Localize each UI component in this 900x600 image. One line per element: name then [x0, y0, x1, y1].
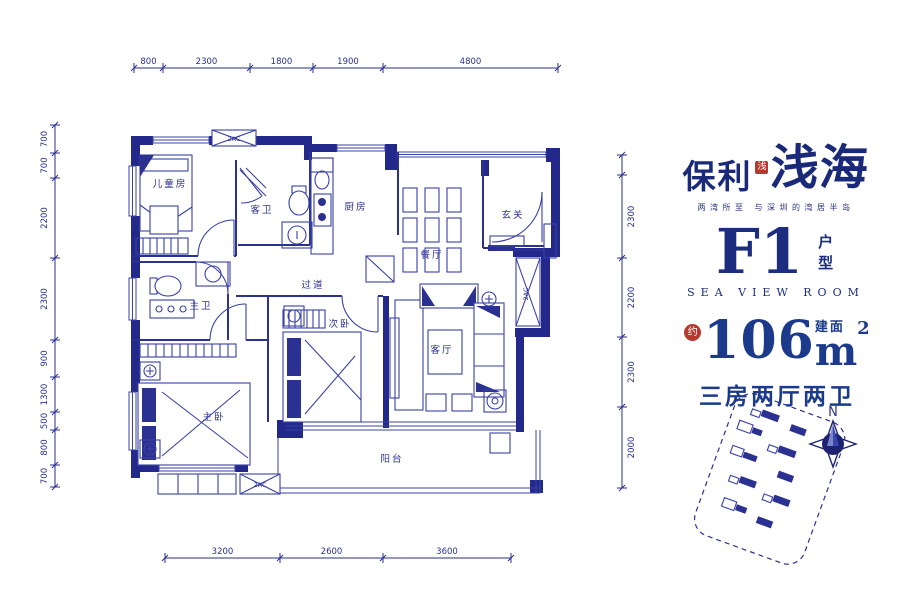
label-dining: 餐厅: [420, 249, 443, 261]
brand-seal: 浅: [755, 161, 768, 174]
svg-text:700: 700: [40, 131, 50, 147]
svg-text:2300: 2300: [627, 206, 637, 228]
svg-text:800: 800: [40, 439, 50, 455]
brand-tagline: 两湾所至 与深圳的湾居半岛: [676, 202, 876, 213]
room-count-label: 三房两厅两卫: [672, 377, 882, 411]
svg-text:2200: 2200: [627, 287, 637, 309]
svg-text:800: 800: [140, 57, 156, 67]
label-guest-bath: 客卫: [250, 204, 273, 216]
svg-text:900: 900: [40, 350, 50, 366]
floorplan-sheet: { "brand": { "name_left": "保利", "seal": …: [0, 0, 900, 600]
area-value: 106: [703, 316, 815, 366]
svg-text:1300: 1300: [40, 384, 50, 406]
svg-text:500: 500: [40, 413, 50, 429]
label-kitchen: 厨房: [344, 201, 367, 213]
label-second-bed: 次卧: [328, 318, 351, 330]
svg-text:2200: 2200: [40, 207, 50, 229]
svg-text:700: 700: [40, 157, 50, 173]
brand-name-right: 浅海: [769, 128, 872, 198]
svg-text:2300: 2300: [196, 57, 218, 67]
label-balcony: 阳台: [380, 453, 403, 465]
label-children-room: 儿童房: [153, 178, 188, 190]
unit-code-suffix: 户型: [815, 234, 836, 276]
label-master-bath: 主卫: [189, 300, 212, 312]
area-block: 约 106 建面 m 2 三房两厅两卫: [672, 316, 882, 411]
svg-text:3200: 3200: [212, 547, 234, 557]
compass: N: [810, 405, 856, 467]
area-superscript: 2: [857, 318, 870, 339]
unit-subtitle: SEA VIEW ROOM: [676, 286, 876, 299]
brand-block: 保利 浅 浅海 两湾所至 与深圳的湾居半岛: [676, 128, 876, 213]
svg-text:2300: 2300: [627, 361, 637, 383]
svg-text:1900: 1900: [337, 57, 359, 67]
unit-block: F1 户型 SEA VIEW ROOM: [676, 222, 876, 299]
brand-name-left: 保利: [682, 150, 752, 198]
label-hallway: 过道: [301, 279, 324, 291]
svg-text:2000: 2000: [627, 437, 637, 459]
label-foyer: 玄关: [501, 209, 524, 221]
svg-text:700: 700: [40, 468, 50, 484]
approx-badge: 约: [684, 324, 701, 341]
label-master-bed: 主卧: [202, 411, 225, 423]
svg-text:1800: 1800: [271, 57, 293, 67]
label-living: 客厅: [430, 344, 453, 356]
ac-bottom-label: 2AC: [253, 481, 266, 489]
ac-right-label: 2AC: [522, 287, 530, 300]
svg-text:2600: 2600: [321, 547, 343, 557]
svg-text:2300: 2300: [40, 288, 50, 310]
svg-text:4800: 4800: [460, 57, 482, 67]
ac-top-label: 2AC: [227, 135, 240, 143]
svg-text:3600: 3600: [436, 547, 458, 557]
unit-code: F1: [716, 222, 803, 282]
floor-plan-canvas: 2AC 2AC 2AC 儿童房 客卫 厨房 玄关 餐厅 过道 主卫 主卧 次卧 …: [0, 0, 900, 600]
area-unit: m: [815, 335, 857, 369]
site-plan: N: [690, 389, 856, 570]
